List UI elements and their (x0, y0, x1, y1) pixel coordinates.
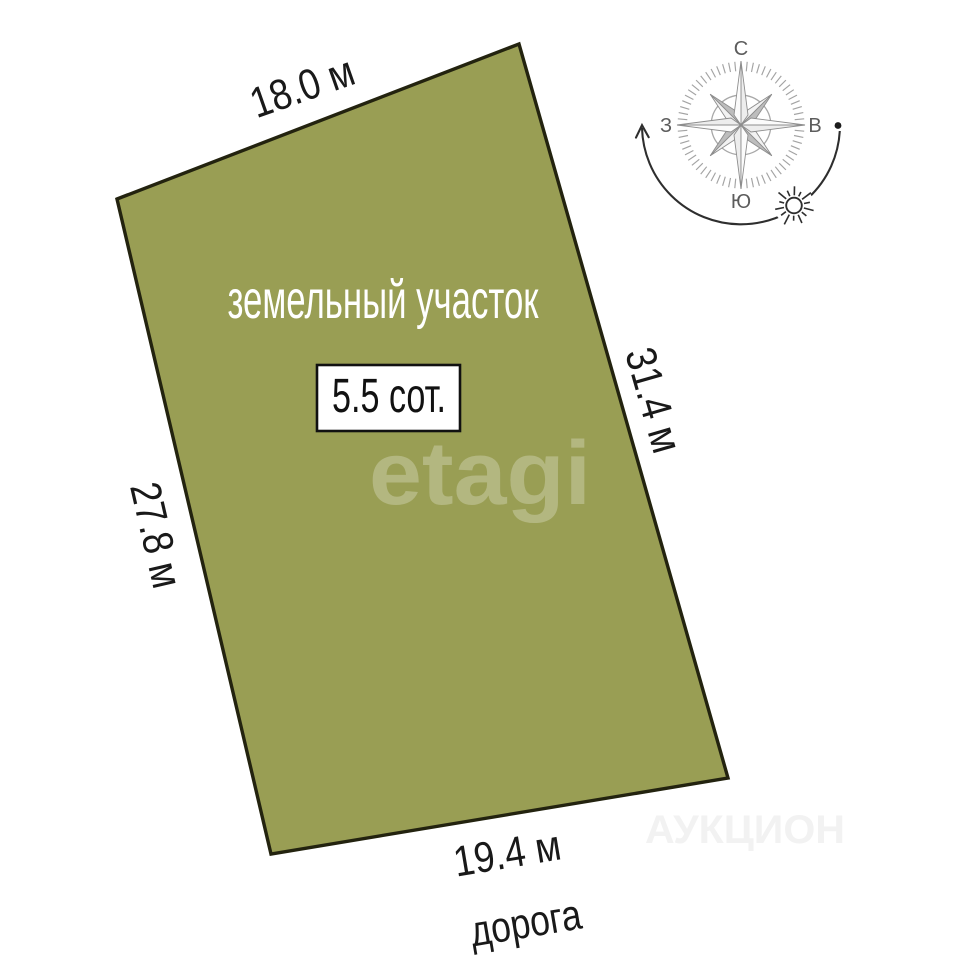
svg-text:земельный участок: земельный участок (228, 270, 539, 330)
svg-text:etagi: etagi (369, 424, 591, 524)
svg-text:С: С (734, 38, 748, 60)
svg-text:В: В (808, 115, 821, 137)
svg-text:дорога: дорога (466, 891, 584, 957)
svg-text:19.4 м: 19.4 м (450, 821, 564, 886)
svg-text:АУКЦИОН: АУКЦИОН (645, 808, 845, 852)
svg-text:5.5 сот.: 5.5 сот. (332, 370, 446, 423)
svg-text:З: З (660, 115, 672, 137)
svg-text:Ю: Ю (731, 191, 751, 213)
svg-text:27.8 м: 27.8 м (120, 478, 191, 593)
